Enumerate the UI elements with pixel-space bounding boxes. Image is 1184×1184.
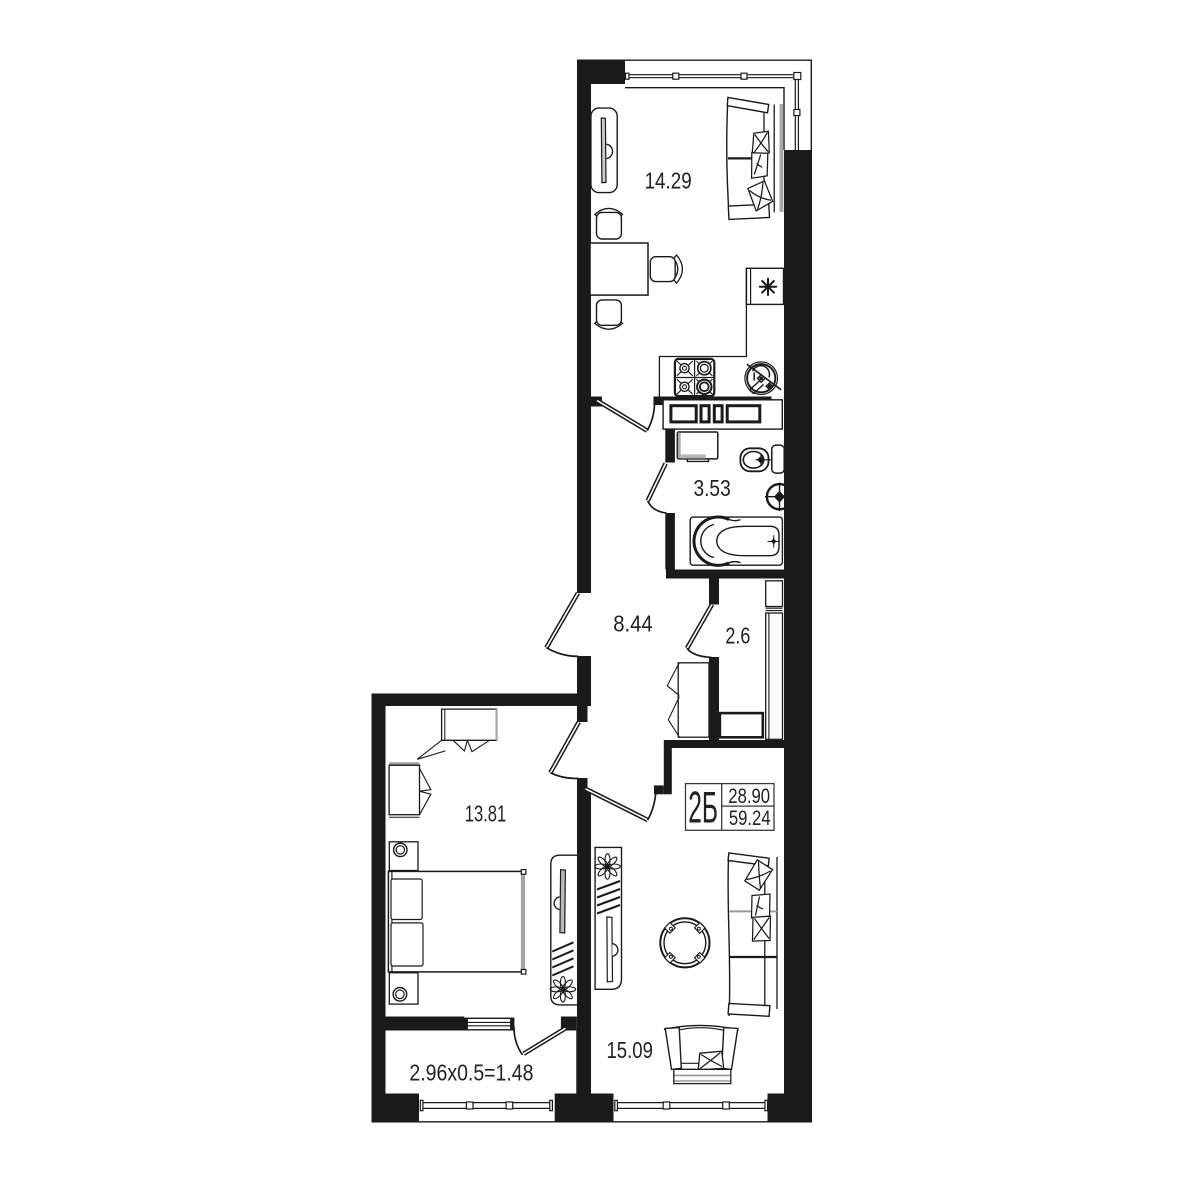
svg-text:2.6: 2.6	[725, 623, 750, 649]
svg-text:2.96х0.5=1.48: 2.96х0.5=1.48	[409, 1059, 533, 1085]
svg-text:13.81: 13.81	[465, 800, 506, 826]
svg-text:14.29: 14.29	[645, 167, 692, 193]
svg-text:28.90: 28.90	[728, 784, 770, 808]
svg-text:15.09: 15.09	[607, 1037, 653, 1063]
svg-text:2Б: 2Б	[688, 784, 718, 833]
svg-text:59.24: 59.24	[729, 806, 771, 830]
svg-text:3.53: 3.53	[694, 475, 731, 501]
svg-text:8.44: 8.44	[613, 610, 653, 636]
